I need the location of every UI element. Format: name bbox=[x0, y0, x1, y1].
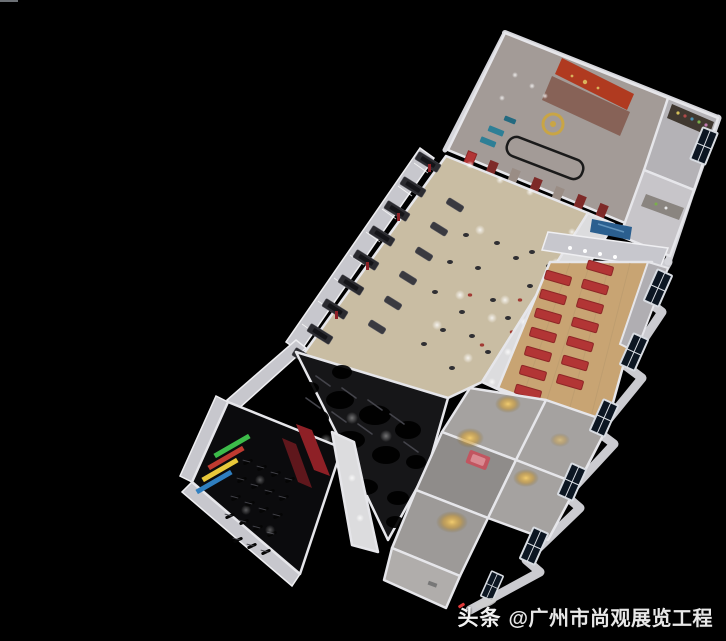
screenshot-root: 头条 @广州市尚观展览工程 bbox=[0, 0, 726, 641]
sauna-glow bbox=[436, 511, 468, 533]
sauna-glow bbox=[513, 469, 539, 487]
toutiao-brand: 头条 bbox=[457, 602, 501, 632]
watermark: 头条 @广州市尚观展览工程 bbox=[457, 602, 713, 632]
feature-wall-logo bbox=[583, 80, 587, 84]
top-edge-artifact bbox=[0, 0, 18, 2]
gym-floorplan-render bbox=[0, 0, 726, 641]
sauna-glow bbox=[495, 395, 521, 413]
watermark-handle: @广州市尚观展览工程 bbox=[508, 602, 713, 631]
toutiao-brand-text: 头条 bbox=[457, 607, 501, 630]
sauna-glow bbox=[550, 433, 570, 447]
sauna-glow bbox=[456, 428, 484, 448]
